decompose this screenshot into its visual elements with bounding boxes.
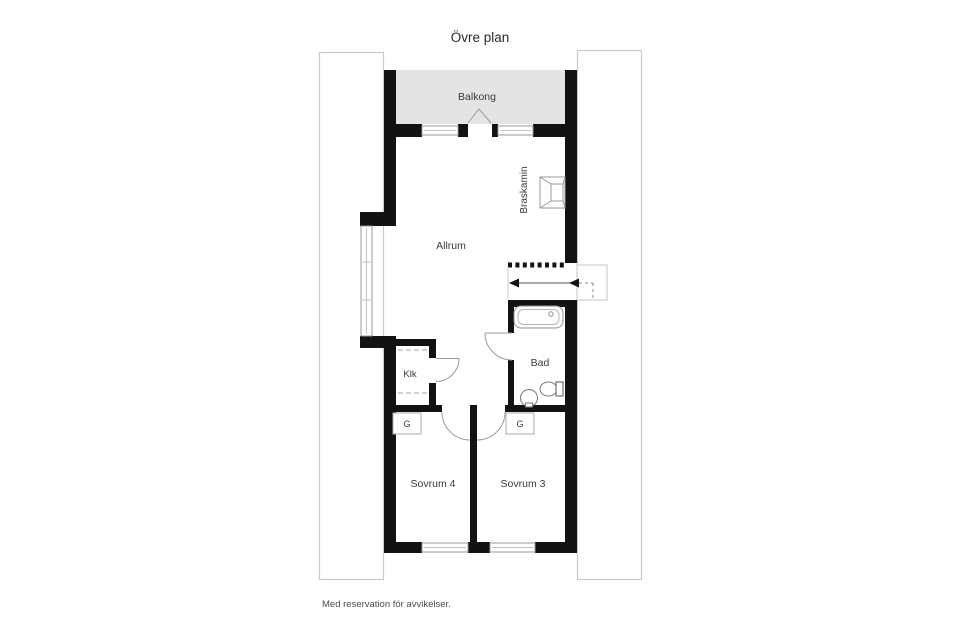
disclaimer-text: Med reservation för avvikelser. bbox=[322, 599, 451, 610]
wall-balcony-2 bbox=[458, 124, 468, 137]
floor-plan-canvas: Övre plan bbox=[0, 0, 960, 640]
roof-panel-right bbox=[578, 51, 642, 580]
wall-balcony-4 bbox=[533, 124, 565, 137]
door-bedroom4-arc bbox=[442, 412, 470, 440]
wall-balcony-3 bbox=[492, 124, 498, 137]
wall-klk-right-lower bbox=[429, 383, 436, 405]
wall-bedroom-divider bbox=[470, 412, 477, 542]
wall-right-upper bbox=[565, 70, 577, 263]
wall-balcony-1 bbox=[384, 124, 422, 137]
bathtub-inner bbox=[518, 310, 559, 325]
doors bbox=[436, 109, 512, 440]
door-bad-arc bbox=[485, 333, 512, 360]
wall-hall-1 bbox=[384, 405, 442, 412]
wall-hall-stub bbox=[470, 405, 477, 412]
wall-left-upper bbox=[384, 70, 396, 212]
wall-klk-right-upper bbox=[429, 339, 436, 358]
door-bedroom3-arc bbox=[477, 412, 505, 440]
wall-hall-2 bbox=[505, 405, 565, 412]
label-balcony: Balkong bbox=[458, 91, 496, 103]
label-bathroom: Bad bbox=[531, 357, 550, 369]
page-title: Övre plan bbox=[451, 30, 510, 45]
stair-arrowhead-2 bbox=[569, 279, 579, 288]
washbasin-tap bbox=[526, 403, 533, 407]
wall-bottom-3 bbox=[535, 542, 565, 553]
wall-bottom-2 bbox=[468, 542, 490, 553]
label-walk-in-closet: Klk bbox=[403, 369, 416, 380]
wall-bad-left-upper bbox=[508, 300, 514, 333]
label-bedroom3: Sovrum 3 bbox=[501, 478, 546, 490]
label-wardrobe-bedroom4: G bbox=[403, 419, 410, 429]
wall-klk-top bbox=[384, 339, 436, 346]
wall-right-lower bbox=[565, 300, 577, 553]
floor-plan-page: Övre plan bbox=[0, 0, 960, 640]
label-living-room: Allrum bbox=[436, 240, 466, 252]
label-wardrobe-bedroom3: G bbox=[516, 419, 523, 429]
toilet-icon bbox=[540, 382, 557, 396]
toilet-tank bbox=[556, 382, 563, 396]
label-fireplace: Braskamin bbox=[519, 166, 530, 213]
stair-arrowhead-1 bbox=[509, 279, 519, 288]
label-bedroom4: Sovrum 4 bbox=[411, 478, 456, 490]
wall-left-lower bbox=[384, 348, 396, 553]
fireplace-icon bbox=[540, 177, 565, 208]
roof-panel-left bbox=[320, 53, 384, 580]
wall-bad-left-lower bbox=[508, 360, 514, 405]
wall-bottom-1 bbox=[384, 542, 422, 553]
wall-jog-top bbox=[360, 212, 396, 226]
door-klk-arc bbox=[436, 359, 459, 382]
